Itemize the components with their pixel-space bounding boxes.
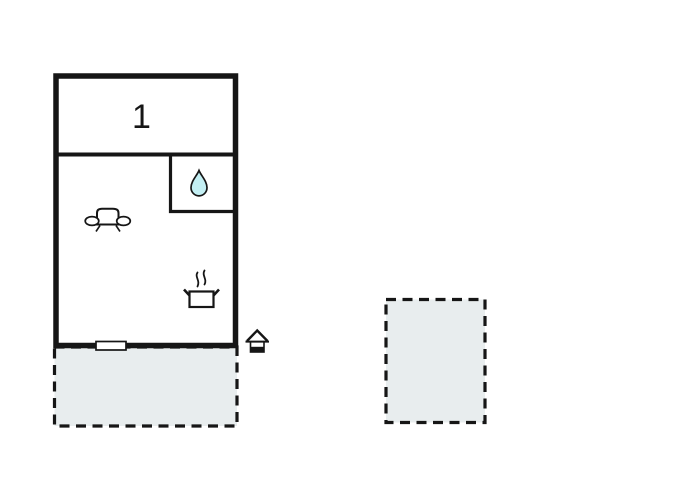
floor-plan-page: 1: [0, 0, 700, 500]
room-1-label: 1: [132, 98, 151, 136]
terrace-below-building: [55, 347, 238, 426]
window-door-marker: [96, 342, 126, 351]
terrace-detached-right: [386, 300, 485, 423]
entrance-house-icon: [246, 331, 270, 353]
floor-plan-drawing: 1: [0, 0, 700, 500]
